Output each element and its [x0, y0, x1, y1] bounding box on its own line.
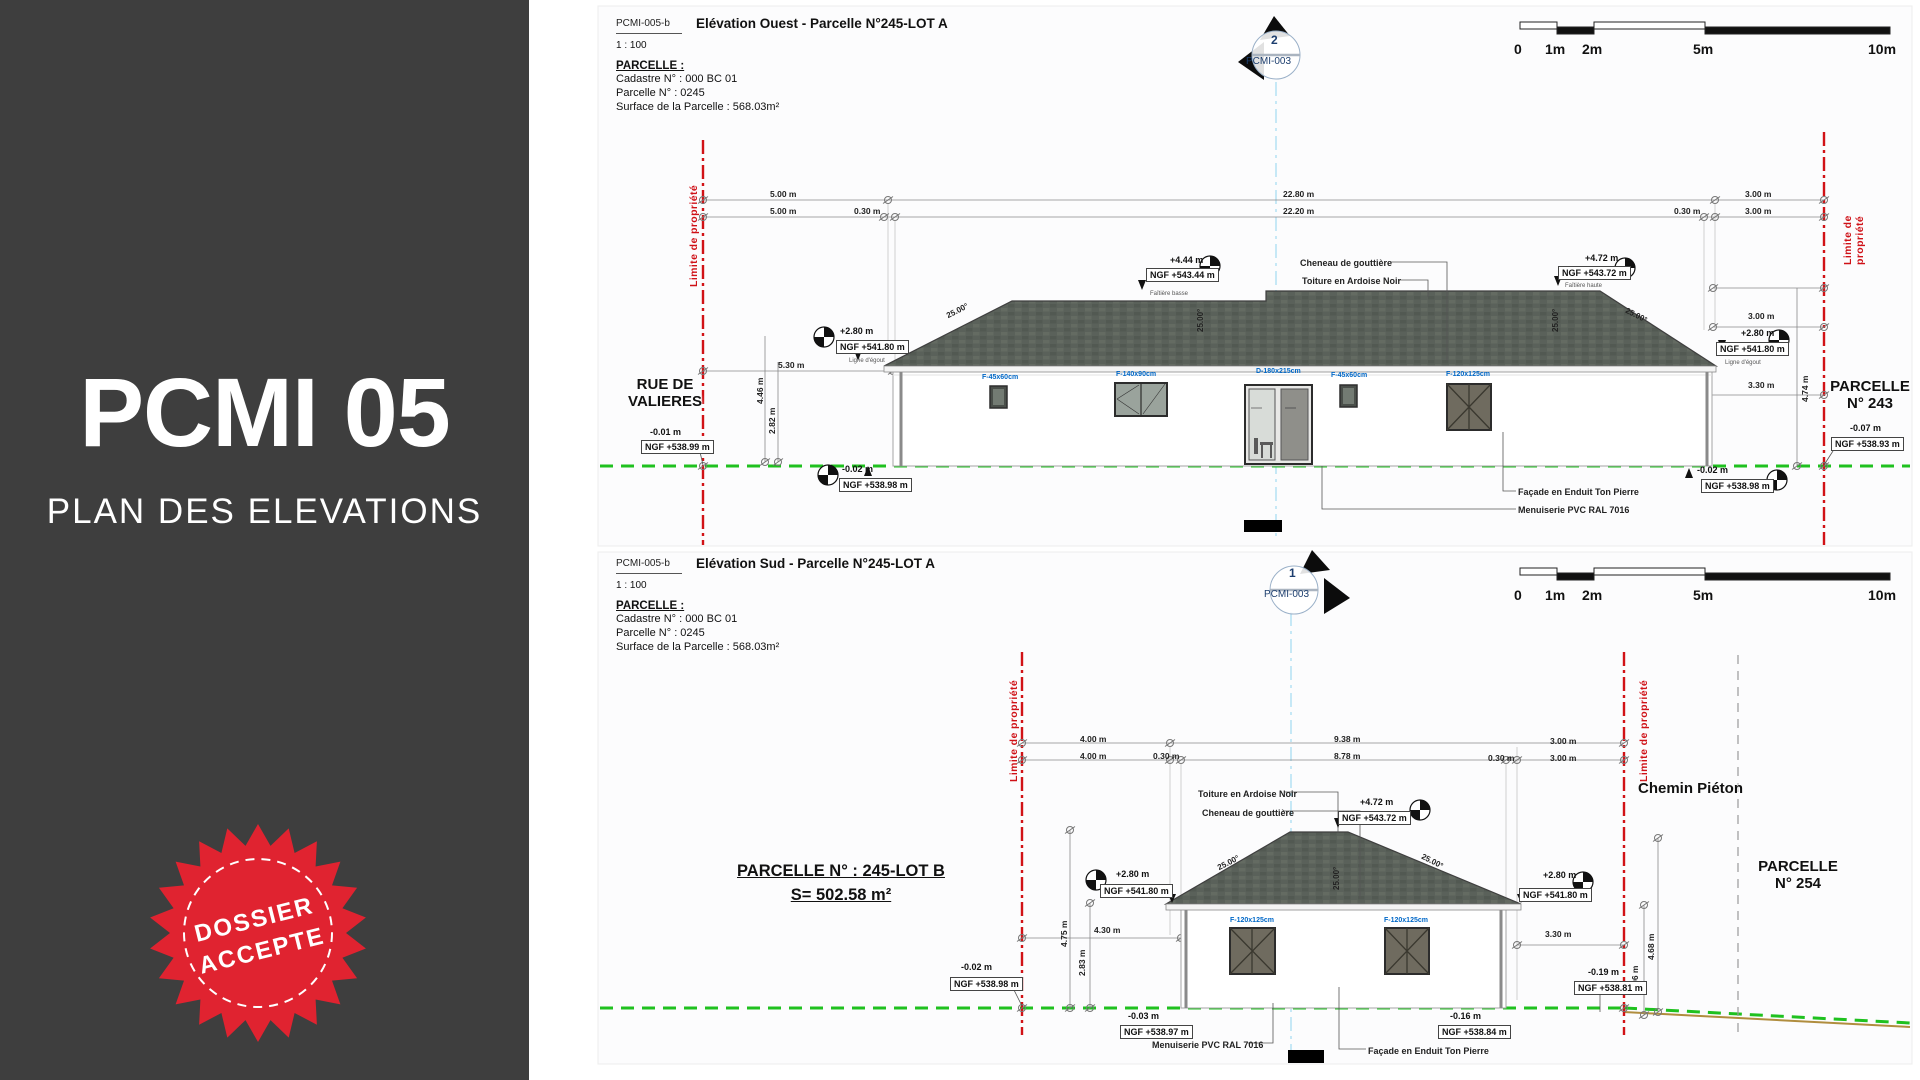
- section-mark-bar: [1244, 520, 1282, 532]
- parcel-surface: Surface de la Parcelle : 568.03m²: [616, 101, 948, 114]
- scale-label: 0: [1514, 587, 1522, 603]
- section-ref: PCMI-003: [1264, 589, 1309, 600]
- scale-label: 1m: [1545, 587, 1565, 603]
- window-140x90: [1115, 383, 1167, 416]
- drawing-ref: PCMI-005-b: [616, 16, 682, 34]
- section-number: 1: [1289, 566, 1296, 580]
- roof-west: [884, 291, 1716, 366]
- scale-label: 5m: [1693, 41, 1713, 57]
- section-mark-bar: [1288, 1050, 1324, 1063]
- gutter: [884, 366, 1716, 372]
- parcel-heading: PARCELLE :: [616, 600, 935, 612]
- titleblock-west: PCMI-005-b Elévation Ouest - Parcelle N°…: [616, 16, 948, 114]
- plan-sheet: PCMI 05 PLAN DES ELEVATIONS DOSSIER ACCE…: [0, 0, 1920, 1080]
- scale-label: 1m: [1545, 41, 1565, 57]
- parcel-surface: Surface de la Parcelle : 568.03m²: [616, 641, 935, 654]
- elevation-drawings: [0, 0, 1920, 1080]
- scale-label: 10m: [1868, 41, 1896, 57]
- drawing-title: Elévation Ouest - Parcelle N°245-LOT A: [696, 16, 948, 31]
- scale-label: 2m: [1582, 41, 1602, 57]
- titleblock-south: PCMI-005-b Elévation Sud - Parcelle N°24…: [616, 556, 935, 654]
- scale-label: 10m: [1868, 587, 1896, 603]
- window-shuttered: [1230, 928, 1275, 974]
- parcel-number: Parcelle N° : 0245: [616, 87, 948, 100]
- window-shuttered: [1385, 928, 1429, 974]
- parcel-cadastre: Cadastre N° : 000 BC 01: [616, 613, 935, 626]
- parcel-number: Parcelle N° : 0245: [616, 627, 935, 640]
- gutter: [1166, 904, 1521, 910]
- scale-label: 0: [1514, 41, 1522, 57]
- window-shuttered: [1447, 384, 1491, 430]
- section-ref: PCMI-003: [1246, 56, 1291, 67]
- scale-label: 2m: [1582, 587, 1602, 603]
- parcel-cadastre: Cadastre N° : 000 BC 01: [616, 73, 948, 86]
- scale-label: 5m: [1693, 587, 1713, 603]
- parcel-heading: PARCELLE :: [616, 60, 948, 72]
- drawing-title: Elévation Sud - Parcelle N°245-LOT A: [696, 556, 935, 571]
- drawing-scale: 1 : 100: [616, 580, 935, 591]
- drawing-ref: PCMI-005-b: [616, 556, 682, 574]
- drawing-scale: 1 : 100: [616, 40, 948, 51]
- entry-door: [1245, 385, 1312, 464]
- section-number: 2: [1271, 33, 1278, 47]
